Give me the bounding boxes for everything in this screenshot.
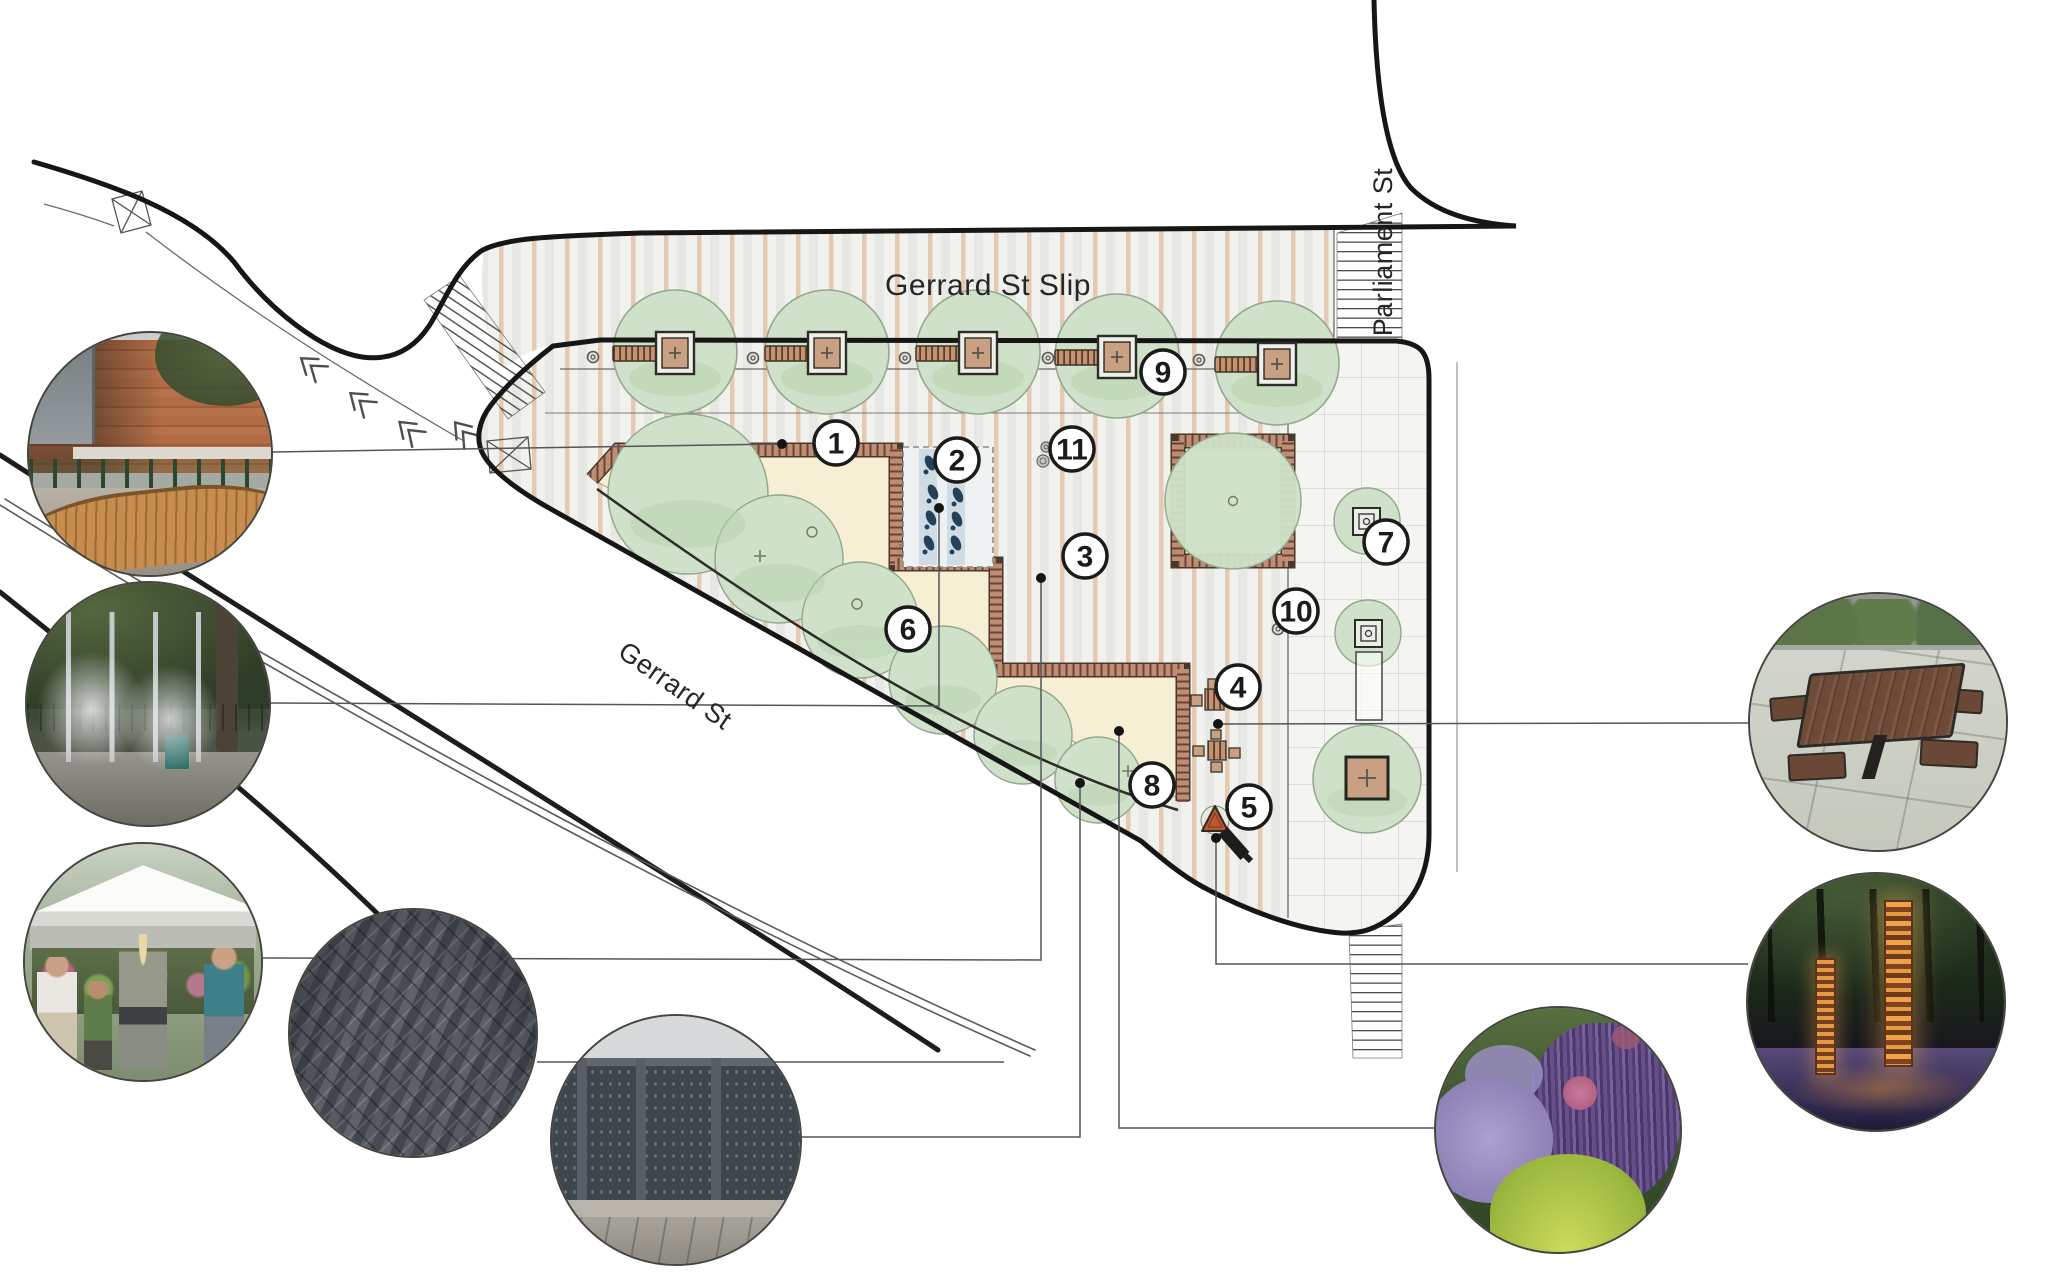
svg-text:6: 6 (900, 614, 917, 647)
svg-text:11: 11 (1056, 434, 1088, 467)
svg-text:2: 2 (949, 445, 966, 478)
marker-7: 7 (1364, 520, 1408, 564)
herringbone-paving-photo (288, 908, 538, 1158)
gerrard-st-label: Gerrard St (613, 636, 738, 736)
bollard (900, 353, 911, 364)
marker-4: 4 (1216, 665, 1260, 709)
bollard (748, 353, 759, 364)
marker-2: 2 (935, 438, 979, 482)
marker-9: 9 (1141, 350, 1185, 394)
perennial-planting-photo (1434, 1006, 1682, 1254)
corten-light-columns-photo (1746, 872, 2006, 1132)
svg-text:3: 3 (1077, 541, 1094, 574)
bollard (1194, 355, 1205, 366)
svg-text:8: 8 (1144, 770, 1161, 803)
marker-5: 5 (1227, 785, 1271, 829)
marker-11: 11 (1050, 427, 1094, 471)
marker-10: 10 (1274, 589, 1318, 633)
svg-text:4: 4 (1230, 672, 1247, 705)
svg-text:7: 7 (1378, 527, 1395, 560)
gerrard-st-slip-label: Gerrard St Slip (885, 269, 1091, 302)
leader-line-picnic (1218, 723, 1749, 724)
svg-text:5: 5 (1241, 792, 1258, 825)
svg-text:10: 10 (1279, 596, 1312, 629)
marker-3: 3 (1063, 534, 1107, 578)
svg-text:1: 1 (828, 428, 845, 461)
curved-bench-photo (27, 331, 273, 577)
bollard (588, 352, 599, 363)
water-mist-plaza-photo (25, 581, 271, 827)
marker-8: 8 (1130, 763, 1174, 807)
metal-screen-fence-photo (550, 1014, 802, 1266)
parliament-st-label: Parliament St (1368, 168, 1398, 337)
market-tents-photo (23, 842, 263, 1082)
site-plan-page: Gerrard St Slip Gerrard St Parliament St… (0, 0, 2048, 1276)
picnic-table-photo (1748, 592, 2008, 852)
bollard (1043, 353, 1054, 364)
marker-6: 6 (886, 607, 930, 651)
marker-1: 1 (814, 421, 858, 465)
svg-text:9: 9 (1155, 357, 1172, 390)
